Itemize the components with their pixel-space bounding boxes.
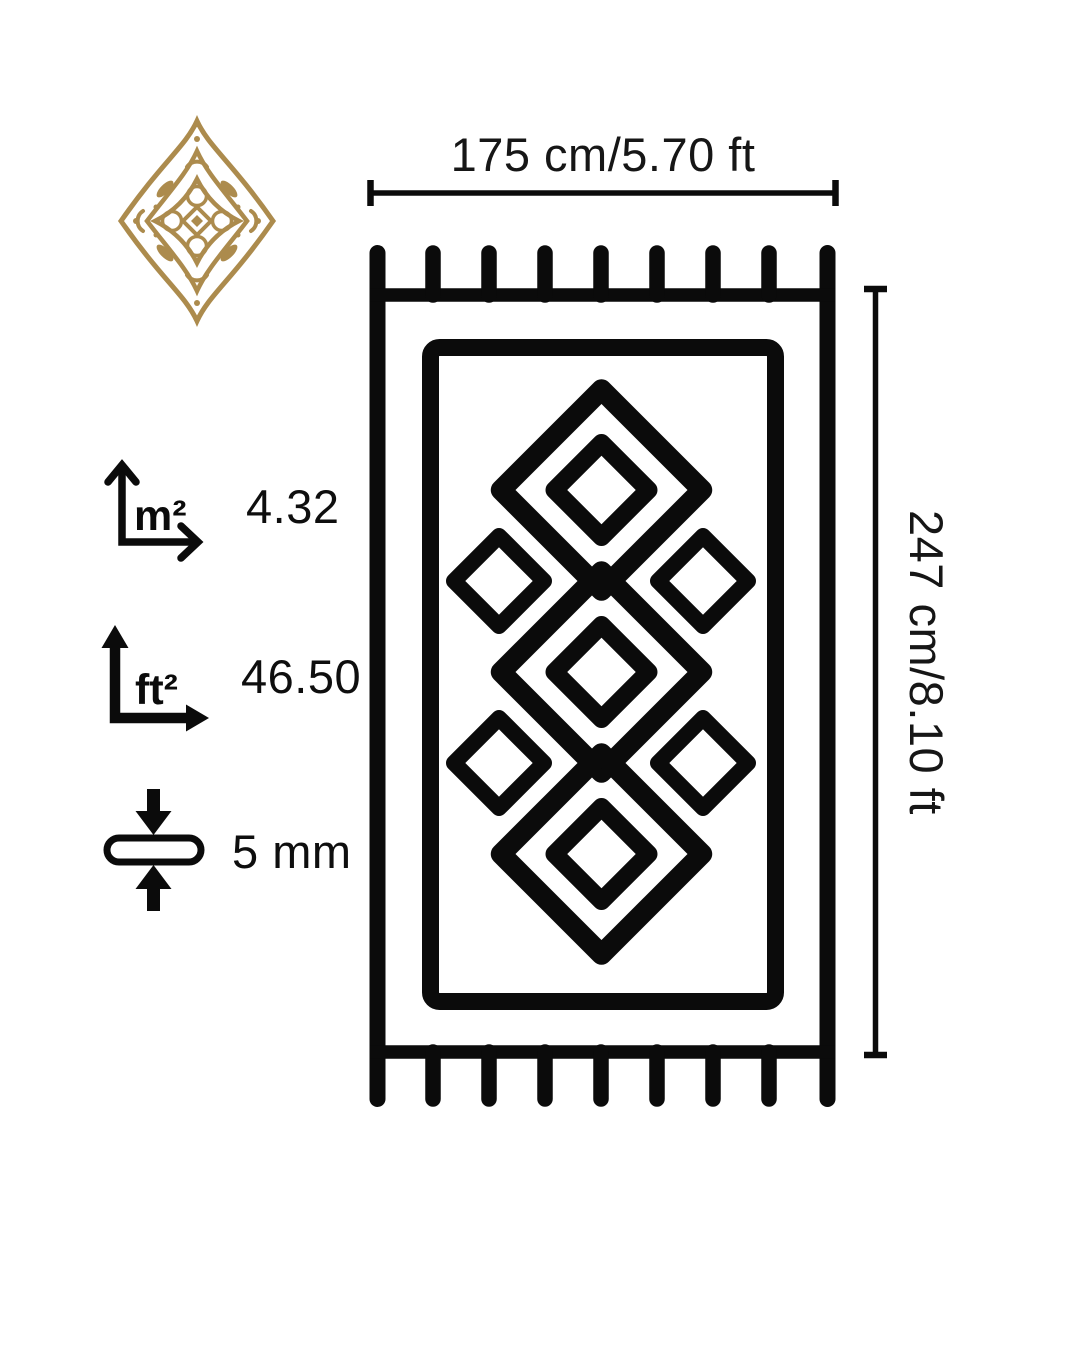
height-dimension-label: 247 cm/8.10 ft xyxy=(899,510,954,815)
area-m2-unit-label: m² xyxy=(134,492,187,540)
rug-fringe-bottom xyxy=(433,1052,769,1099)
thickness-value: 5 mm xyxy=(232,828,352,875)
thickness-icon xyxy=(85,786,225,918)
area-ft2-value: 46.50 xyxy=(241,653,361,700)
rug-diamond-pattern xyxy=(454,390,748,955)
area-ft2-icon: ft² xyxy=(95,620,215,734)
product-dimensions-canvas: 175 cm/5.70 ft 247 cm/8.10 ft xyxy=(0,0,1080,1350)
arabesque-medallion-icon xyxy=(112,115,282,327)
rug-fringe-top xyxy=(433,253,769,295)
rug-diagram-icon xyxy=(355,228,855,1118)
area-ft2-unit-label: ft² xyxy=(135,666,178,714)
height-dimension-line xyxy=(855,281,897,1063)
area-m2-value: 4.32 xyxy=(246,483,339,530)
width-dimension-line xyxy=(360,172,846,214)
area-m2-icon: m² xyxy=(98,452,213,564)
